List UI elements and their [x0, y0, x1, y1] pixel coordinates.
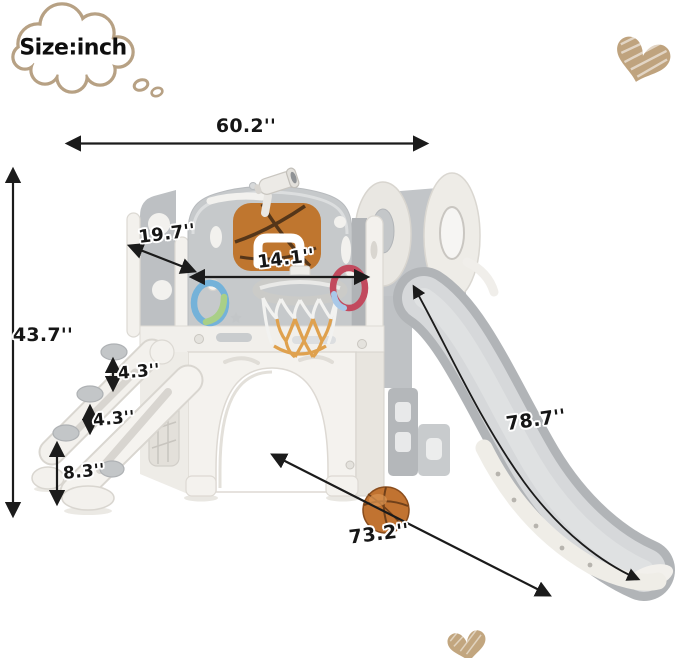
dim-label-overall-width: 60.2'' [216, 115, 276, 137]
dim-label-step-gap-upper: 4.3'' [117, 360, 161, 384]
product-dimension-diagram: Size:inch 60.2'' 43.7'' 19.7'' 14.1'' 4.… [0, 0, 679, 658]
illustration-svg [0, 0, 679, 658]
dim-label-overall-height: 43.7'' [13, 324, 73, 346]
heart-scribble-bottom-icon [446, 623, 489, 658]
tower [127, 167, 384, 501]
size-unit-bubble-text: Size:inch [19, 36, 126, 61]
dim-label-step-height-bottom: 8.3'' [62, 460, 106, 484]
heart-scribble-top-icon [610, 23, 676, 89]
side-step-ladder [388, 388, 450, 476]
dim-label-step-gap-middle: 4.3'' [92, 407, 136, 431]
